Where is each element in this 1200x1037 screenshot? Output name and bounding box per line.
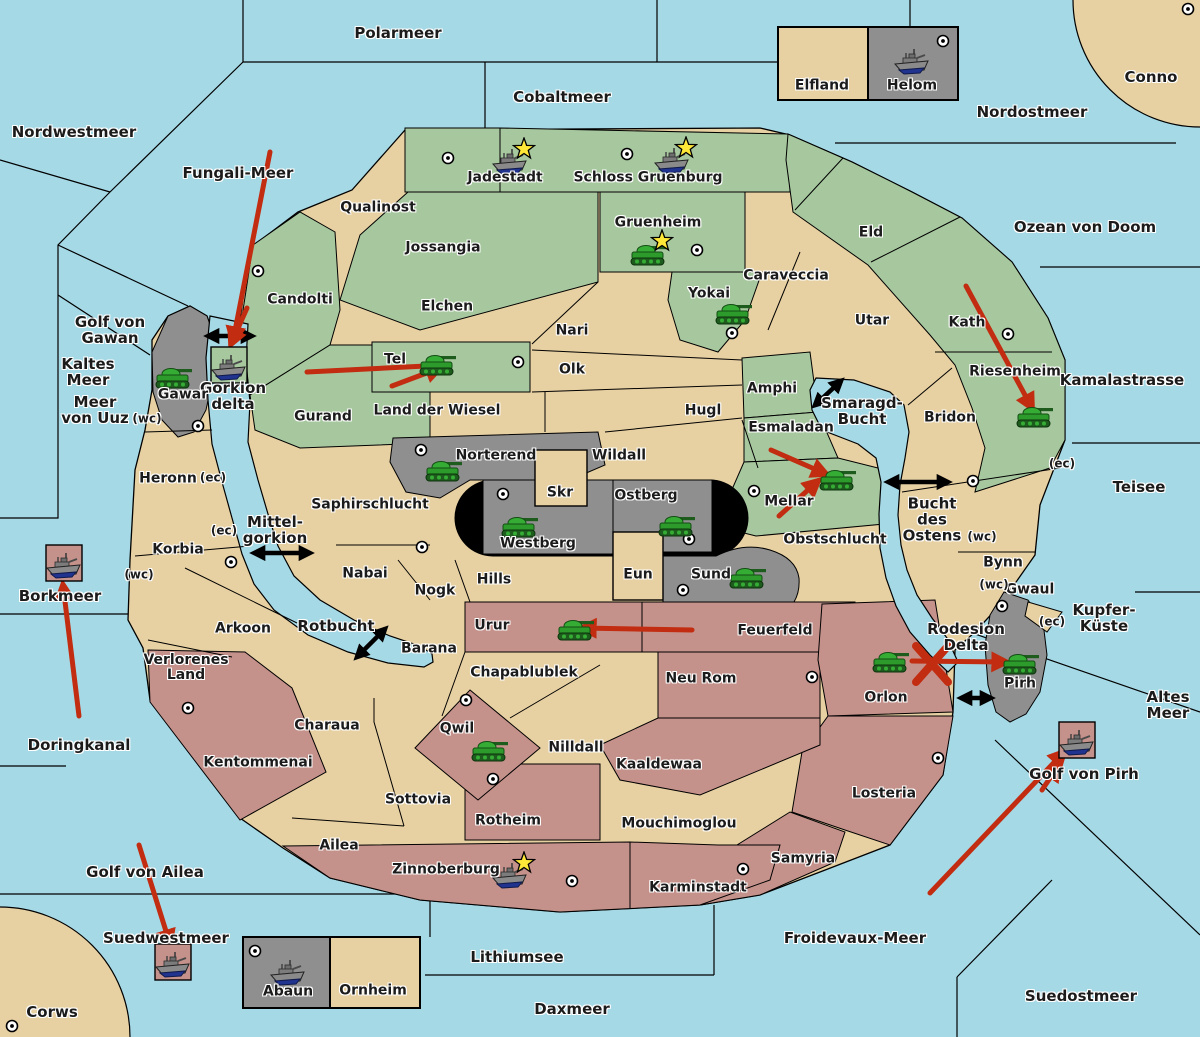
territory-label[interactable]: Yokai: [688, 286, 730, 301]
territory-label[interactable]: Skr: [547, 485, 573, 500]
territory-label[interactable]: Olk: [559, 362, 585, 377]
territory-label[interactable]: Arkoon: [215, 621, 271, 636]
coast-marker: (wc): [124, 569, 153, 582]
territory-label[interactable]: Verlorenes Land: [143, 653, 228, 683]
territory-label[interactable]: Candolti: [267, 292, 333, 307]
sea-label[interactable]: Doringkanal: [28, 737, 131, 753]
sea-label[interactable]: Golf von Pirh: [1029, 766, 1139, 782]
territory-label[interactable]: Gurand: [294, 409, 352, 424]
territory-label[interactable]: Elchen: [421, 299, 473, 314]
sea-label[interactable]: Borkmeer: [19, 588, 102, 604]
territory-label[interactable]: Nogk: [415, 583, 456, 598]
territory-label[interactable]: Ostberg: [614, 488, 677, 503]
territory-label[interactable]: Sottovia: [385, 792, 451, 807]
territory-label[interactable]: Nabai: [342, 566, 387, 581]
territory-label[interactable]: Samyria: [771, 851, 835, 866]
territory-label[interactable]: Wildall: [592, 448, 646, 463]
territory-label[interactable]: Qualinost: [340, 200, 416, 215]
coast-marker: (wc): [967, 531, 996, 544]
sea-label[interactable]: Cobaltmeer: [513, 89, 611, 105]
coast-marker: (ec): [1039, 616, 1065, 629]
sea-label[interactable]: Suedostmeer: [1025, 988, 1137, 1004]
territory-label[interactable]: Barana: [401, 641, 457, 656]
territory-label[interactable]: Heronn: [139, 471, 197, 486]
territory-label[interactable]: Schloss Gruenburg: [573, 170, 722, 185]
territory-label[interactable]: Esmaladan: [748, 420, 834, 435]
territory-label[interactable]: Neu Rom: [665, 671, 736, 686]
territory-label[interactable]: Karminstadt: [649, 880, 747, 895]
territory-label[interactable]: Qwil: [440, 721, 474, 736]
sea-label[interactable]: Daxmeer: [534, 1001, 610, 1017]
territory-label[interactable]: Nari: [556, 323, 589, 338]
territory-label[interactable]: Kath: [949, 315, 986, 330]
territory-label[interactable]: Norterend: [456, 448, 537, 463]
territory-label[interactable]: Kaaldewaa: [616, 757, 702, 772]
territory-label[interactable]: Westberg: [500, 536, 576, 551]
territory-label[interactable]: Korbia: [152, 542, 203, 557]
territory-label[interactable]: Caraveccia: [743, 268, 829, 283]
sea-label[interactable]: Kaltes Meer: [61, 356, 114, 388]
territory-label[interactable]: Elfland: [795, 78, 849, 93]
territory-label[interactable]: Ornheim: [339, 983, 407, 998]
territory-label[interactable]: Eld: [859, 225, 883, 240]
territory-label[interactable]: Zinnoberburg: [392, 862, 500, 877]
territory-label[interactable]: Rotheim: [475, 813, 541, 828]
territory-label[interactable]: Jossangia: [405, 240, 480, 255]
territory-label[interactable]: Kentommenai: [203, 755, 312, 770]
sea-label[interactable]: Kamalastrasse: [1060, 372, 1184, 388]
territory-label[interactable]: Feuerfeld: [737, 623, 812, 638]
territory-label[interactable]: Jadestadt: [467, 170, 542, 185]
coast-marker: (wc): [132, 413, 161, 426]
coast-marker: (wc): [979, 579, 1008, 592]
territory-label[interactable]: Bridon: [924, 410, 976, 425]
sea-label[interactable]: Lithiumsee: [470, 949, 563, 965]
sea-label[interactable]: Froidevaux-Meer: [784, 930, 926, 946]
territory-label[interactable]: Orlon: [864, 690, 907, 705]
territory-label[interactable]: Chapablublek: [470, 665, 578, 680]
territory-label[interactable]: Hills: [477, 572, 511, 587]
sea-label[interactable]: Rodesion Delta: [927, 621, 1005, 653]
sea-label[interactable]: Corws: [26, 1004, 78, 1020]
sea-label[interactable]: Mittel- gorkion: [243, 514, 308, 546]
territory-label[interactable]: Urur: [474, 618, 509, 633]
territory-label[interactable]: Gruenheim: [615, 215, 702, 230]
sea-label[interactable]: Bucht des Ostens: [903, 496, 962, 545]
territory-label[interactable]: Helom: [887, 78, 937, 93]
game-map: PolarmeerCobaltmeerNordostmeerConnoNordw…: [0, 0, 1200, 1037]
label-layer: PolarmeerCobaltmeerNordostmeerConnoNordw…: [0, 0, 1200, 1037]
coast-marker: (ec): [200, 472, 226, 485]
coast-marker: (ec): [1049, 458, 1075, 471]
territory-label[interactable]: Pirh: [1004, 676, 1036, 691]
territory-label[interactable]: Obstschlucht: [783, 532, 886, 547]
territory-label[interactable]: Bynn: [983, 555, 1023, 570]
sea-label[interactable]: Kupfer- Küste: [1072, 602, 1135, 634]
territory-label[interactable]: Mouchimoglou: [621, 816, 736, 831]
sea-label[interactable]: Polarmeer: [354, 25, 441, 41]
sea-label[interactable]: Nordwestmeer: [12, 124, 137, 140]
sea-label[interactable]: Teisee: [1113, 479, 1166, 495]
territory-label[interactable]: Land der Wiesel: [374, 403, 501, 418]
territory-label[interactable]: Sund: [691, 567, 731, 582]
coast-marker: (ec): [211, 525, 237, 538]
sea-label[interactable]: Rotbucht: [297, 618, 374, 634]
territory-label[interactable]: Saphirschlucht: [311, 497, 429, 512]
territory-label[interactable]: Abaun: [263, 984, 313, 999]
territory-label[interactable]: Nilldall: [548, 740, 603, 755]
territory-label[interactable]: Tel: [384, 352, 406, 367]
territory-label[interactable]: Utar: [855, 313, 889, 328]
territory-label[interactable]: Riesenheim: [969, 364, 1061, 379]
sea-label[interactable]: Altes Meer: [1146, 689, 1189, 721]
territory-label[interactable]: Losteria: [852, 786, 916, 801]
territory-label[interactable]: Eun: [623, 567, 653, 582]
sea-label[interactable]: Suedwestmeer: [103, 930, 229, 946]
territory-label[interactable]: Amphi: [747, 381, 797, 396]
sea-label[interactable]: Gorkion delta: [200, 380, 266, 412]
territory-label[interactable]: Ailea: [319, 838, 358, 853]
sea-label[interactable]: Nordostmeer: [977, 104, 1088, 120]
territory-label[interactable]: Gwaul: [1006, 582, 1055, 597]
sea-label[interactable]: Conno: [1125, 69, 1178, 85]
territory-label[interactable]: Gawar: [158, 387, 208, 402]
territory-label[interactable]: Mellar: [764, 494, 813, 509]
sea-label[interactable]: Meer von Uuz: [61, 394, 129, 426]
territory-label[interactable]: Hugl: [685, 403, 722, 418]
sea-label[interactable]: Ozean von Doom: [1014, 219, 1156, 235]
territory-label[interactable]: Charaua: [294, 718, 359, 733]
sea-label[interactable]: Golf von Ailea: [86, 864, 204, 880]
sea-label[interactable]: Fungali-Meer: [183, 165, 294, 181]
sea-label[interactable]: Golf von Gawan: [75, 314, 145, 346]
